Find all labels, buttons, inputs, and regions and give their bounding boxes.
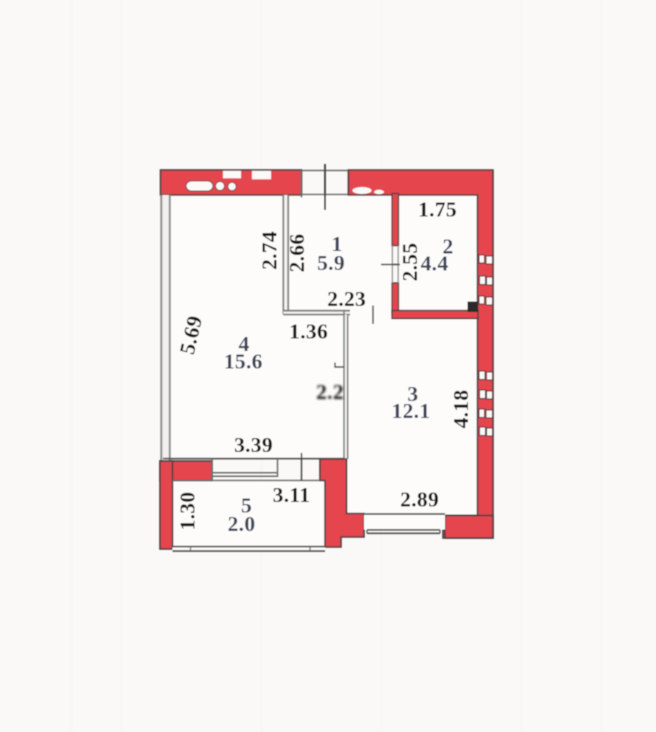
svg-text:2.66: 2.66 (285, 234, 309, 273)
svg-text:4.4: 4.4 (421, 252, 449, 276)
svg-text:15.6: 15.6 (224, 350, 263, 374)
svg-text:1.30: 1.30 (176, 492, 200, 531)
svg-text:4.18: 4.18 (449, 390, 473, 429)
svg-text:12.1: 12.1 (392, 399, 431, 423)
svg-text:1.75: 1.75 (418, 198, 457, 222)
svg-text:2.55: 2.55 (398, 243, 422, 282)
svg-text:5.9: 5.9 (317, 251, 345, 275)
svg-text:2.0: 2.0 (228, 512, 256, 536)
svg-text:2.23: 2.23 (327, 287, 366, 311)
svg-text:2.74: 2.74 (258, 231, 282, 270)
svg-text:3.11: 3.11 (273, 483, 311, 507)
svg-text:2.2: 2.2 (316, 380, 344, 404)
svg-text:2.89: 2.89 (400, 488, 439, 512)
svg-text:3.39: 3.39 (234, 433, 273, 457)
svg-text:1.36: 1.36 (289, 320, 328, 344)
